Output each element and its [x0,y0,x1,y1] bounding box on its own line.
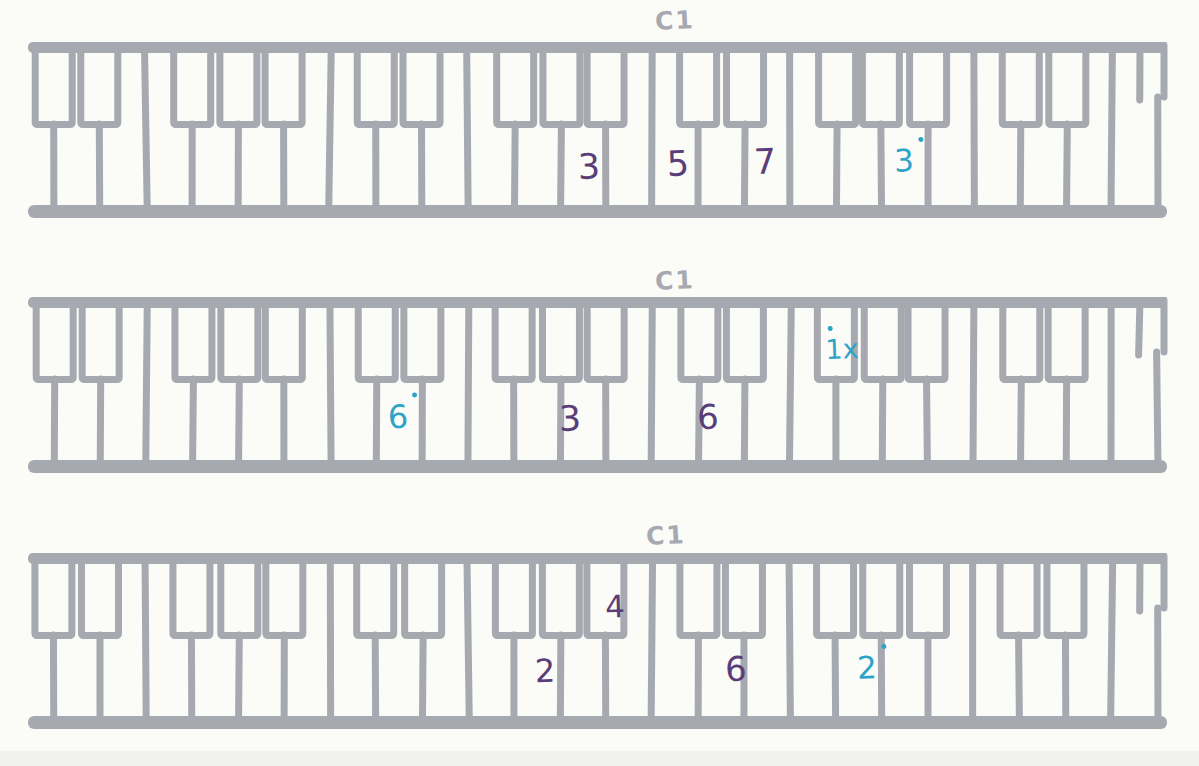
c1-label: C1 [645,522,686,549]
jianpu-number-annotation: 2 [857,652,878,684]
jianpu-number-annotation: 6 [725,652,748,687]
jianpu-number-annotation: 2 [534,655,555,688]
octave-dot [881,644,886,649]
scanned-worksheet: C1 3573 C1 6361x C1 4262 [0,0,1199,766]
scan-bottom-edge [0,751,1199,766]
keyboard-strip-3: C1 4262 [0,0,1199,766]
piano-keyboard-drawing [0,553,1199,735]
jianpu-number-annotation: 4 [605,591,626,623]
